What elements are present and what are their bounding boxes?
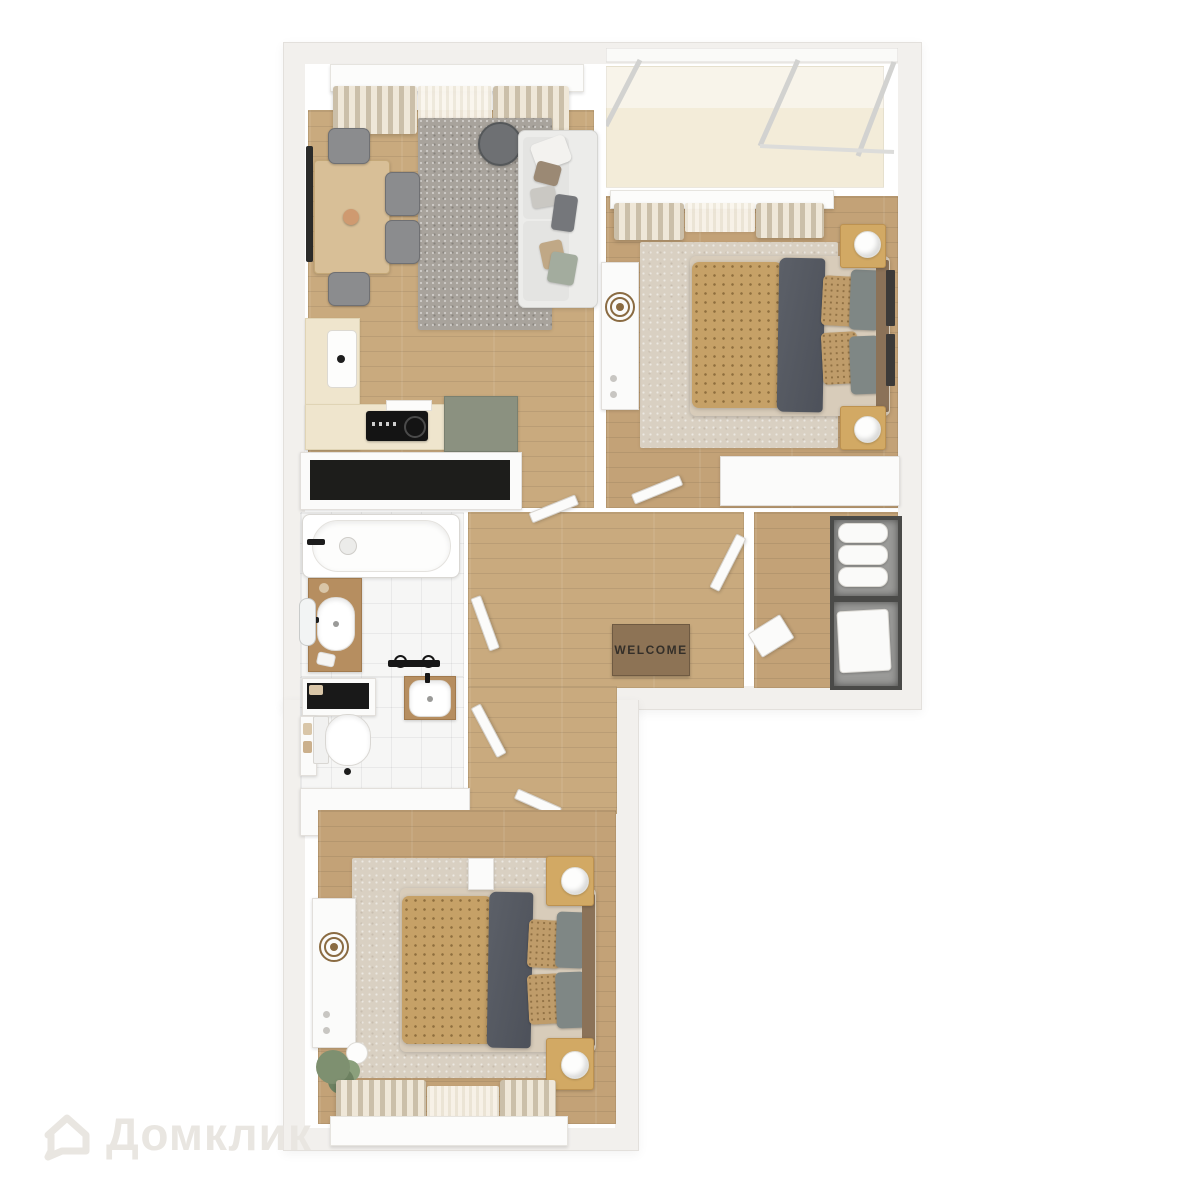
- bedroom1-curtain-sheer: [685, 203, 755, 232]
- shelf-towel: [303, 723, 312, 735]
- bed2-headboard: [582, 894, 595, 1046]
- folded-linen: [838, 545, 888, 565]
- bedroom1-curtain-left: [614, 203, 684, 240]
- wall-picture: [886, 334, 895, 386]
- plant-leaves: [316, 1050, 350, 1084]
- sofa-pillow: [547, 251, 579, 286]
- folded-blanket: [836, 609, 891, 674]
- towel-mixer-bar: [388, 660, 440, 667]
- mixer-handle: [394, 655, 407, 668]
- toilet: [313, 714, 369, 764]
- tv-panel: [306, 146, 313, 262]
- living-curtain-left: [333, 86, 417, 134]
- dresser-knob: [323, 1027, 330, 1034]
- cooktop-knobs: [372, 422, 398, 426]
- living-curtain-sheer: [418, 86, 492, 122]
- bedroom1-nightstand: [840, 224, 886, 268]
- bathroom-mirror: [299, 598, 316, 646]
- bedroom2-radiator: [468, 858, 494, 890]
- closet-shelf-lower: [830, 598, 902, 690]
- toilet-bowl: [325, 714, 371, 766]
- house-icon: [38, 1105, 96, 1163]
- refrigerator-green: [444, 396, 518, 452]
- bathtub: [302, 514, 460, 578]
- mixer-handle: [422, 655, 435, 668]
- bedroom1-bed: [690, 256, 890, 416]
- folded-linen: [838, 567, 888, 587]
- sink-drain: [333, 621, 339, 627]
- dining-chair: [328, 272, 370, 306]
- dresser-knob: [610, 375, 617, 382]
- wall-picture: [886, 270, 895, 326]
- bathtub-faucet: [307, 539, 325, 545]
- toilet-sink-tap: [425, 673, 430, 683]
- shelf-towel: [303, 741, 312, 753]
- floor-plan: WELCOME: [0, 0, 1200, 1200]
- sink-drain: [427, 696, 433, 702]
- vanity-sink: [317, 597, 355, 651]
- coffee-table: [478, 122, 522, 166]
- nightstand-lamp: [854, 416, 881, 443]
- cooktop: [366, 411, 428, 441]
- vanity-accessory: [319, 583, 329, 593]
- balcony-glazing-frame: [606, 48, 898, 178]
- sofa-pillow: [551, 194, 579, 233]
- bedroom1-dresser: [601, 262, 639, 410]
- watermark-label: Домклик: [106, 1107, 312, 1161]
- hallway-floor-lower: [468, 686, 617, 814]
- sink-faucet: [337, 355, 345, 363]
- toilet-brush: [344, 768, 351, 775]
- target-decor: [318, 931, 350, 963]
- toilet-sink-shelf: [404, 676, 456, 720]
- cooktop-burner: [404, 416, 426, 438]
- bed1-blanket: [777, 258, 826, 413]
- toilet-niche-frame: [302, 678, 376, 716]
- storage-unit-interior: [310, 460, 510, 500]
- table-vase: [343, 209, 359, 225]
- bedroom2-bed: [400, 888, 596, 1052]
- bedroom2-dresser: [312, 898, 356, 1048]
- bedroom2-curtain-sheer: [427, 1086, 499, 1120]
- hallway-floor: [468, 512, 744, 688]
- range-hood: [386, 400, 432, 411]
- toilet-sink-basin: [409, 680, 451, 717]
- nightstand-lamp: [561, 867, 589, 895]
- bathroom-vanity: [308, 578, 362, 672]
- dresser-knob: [610, 391, 617, 398]
- watermark: Домклик: [38, 1102, 312, 1166]
- dining-chair: [385, 172, 420, 216]
- target-decor: [604, 291, 636, 323]
- niche-towel: [309, 685, 323, 695]
- nightstand-lamp: [561, 1051, 589, 1079]
- bed1-duvet: [692, 262, 782, 408]
- bedroom1-nightstand: [840, 406, 886, 450]
- sofa: [518, 130, 598, 308]
- bedroom2-nightstand: [546, 856, 594, 906]
- nightstand-lamp: [854, 231, 881, 258]
- vanity-towel: [316, 651, 336, 667]
- kitchen-sink: [327, 330, 357, 388]
- folded-linen: [838, 523, 888, 543]
- dining-chair: [328, 128, 370, 164]
- closet-shelf-upper: [830, 516, 902, 600]
- bedroom1-curtain-right: [756, 203, 824, 238]
- dining-table: [314, 160, 390, 274]
- bathtub-basin: [312, 520, 451, 572]
- bed2-duvet: [402, 896, 492, 1044]
- bedroom1-wardrobe: [720, 456, 900, 506]
- bathtub-drain: [339, 537, 357, 555]
- bedroom2-window-sill: [330, 1116, 568, 1146]
- welcome-mat: WELCOME: [612, 624, 690, 676]
- bed2-blanket: [487, 892, 534, 1049]
- plant-pot: [346, 1042, 368, 1064]
- dresser-knob: [323, 1011, 330, 1018]
- storage-unit-frame: [300, 452, 522, 510]
- welcome-mat-label: WELCOME: [614, 643, 687, 657]
- dining-chair: [385, 220, 420, 264]
